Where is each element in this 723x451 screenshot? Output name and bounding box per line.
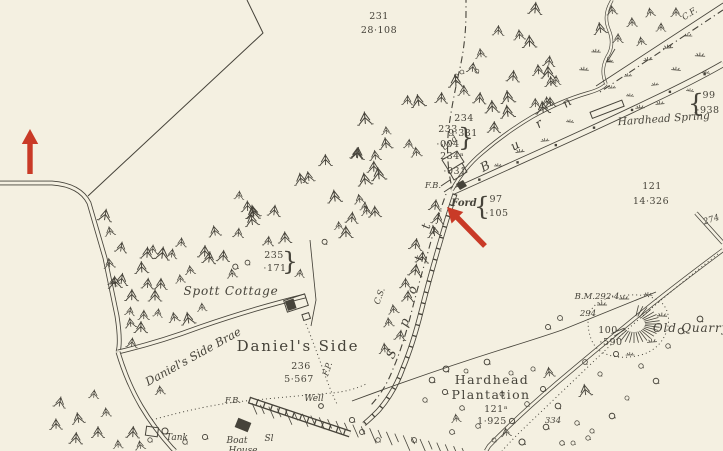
map-label: B.M.292·4 <box>574 292 620 302</box>
map-label: Plantation <box>452 387 531 402</box>
map-label: } <box>282 247 298 276</box>
map-label: Spott Cottage <box>184 284 279 298</box>
map-label: 231 <box>369 11 389 22</box>
map-label: 334 <box>545 416 561 426</box>
map-label: Old Quarry <box>653 321 723 335</box>
map-label: Well <box>304 394 324 404</box>
map-label: Boat <box>225 436 247 446</box>
boundary-post <box>478 178 480 180</box>
map-label: 234ᵃ <box>440 151 464 162</box>
map-label: F.B. <box>224 396 241 406</box>
paper-background <box>0 0 723 451</box>
map-label: 100 <box>598 325 618 336</box>
map-label: Hardhead <box>455 372 529 387</box>
boundary-post <box>631 109 633 111</box>
map-label: Ford <box>450 198 476 209</box>
map-label: 99 <box>702 90 715 101</box>
boundary-post <box>703 73 705 75</box>
map-label: 1·925 <box>477 416 507 427</box>
map-label: Tank <box>166 433 188 443</box>
map-label: 235 <box>264 250 284 261</box>
boundary-post <box>593 126 595 128</box>
map-label: ·031 <box>443 166 466 177</box>
map-canvas: 23128·108233·004}2349·331234ᵃ·03197·105{… <box>0 0 723 451</box>
map-label: 121ᵃ <box>484 404 508 415</box>
boundary-post <box>516 161 518 163</box>
map-label: 121 <box>642 181 662 192</box>
map-label: Sl <box>264 434 273 444</box>
map-label: F.B. <box>424 181 441 191</box>
map-label: Daniel's Side <box>237 337 360 355</box>
map-label: House <box>227 446 257 451</box>
map-label: 236 <box>291 361 311 372</box>
os-map-screenshot: 23128·108233·004}2349·331234ᵃ·03197·105{… <box>0 0 723 451</box>
map-label: 97 <box>489 194 502 205</box>
map-label: 5·567 <box>284 374 314 385</box>
map-label: 294 <box>579 309 596 319</box>
map-label: 14·326 <box>633 196 669 207</box>
map-label: 28·108 <box>361 25 397 36</box>
boundary-post <box>669 91 671 93</box>
map-label: ·590 <box>599 337 622 348</box>
boundary-post <box>555 144 557 146</box>
map-label: 234 <box>454 113 474 124</box>
